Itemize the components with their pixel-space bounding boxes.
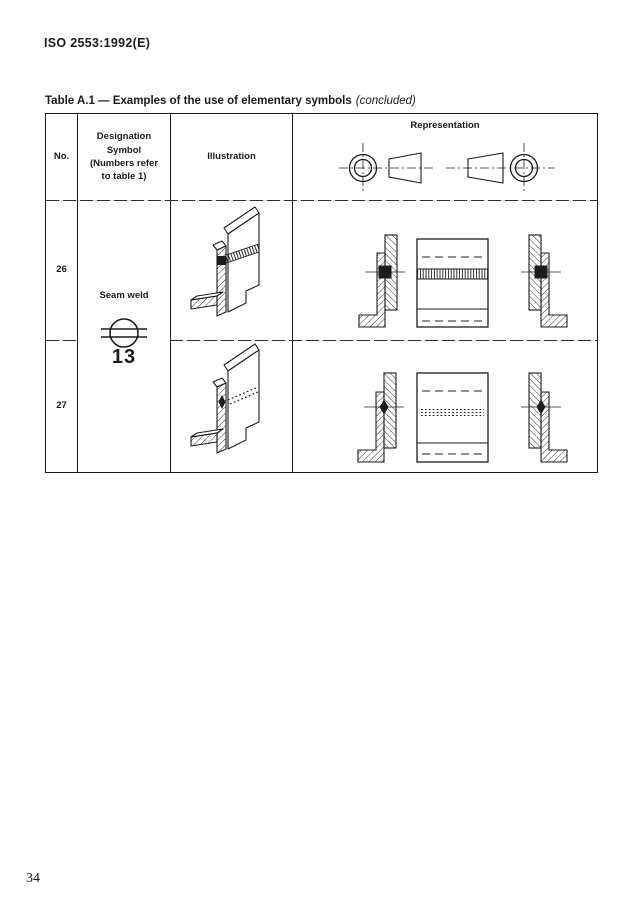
front-view <box>417 239 488 327</box>
symbol-number: 13 <box>78 346 170 369</box>
standard-reference: ISO 2553:1992(E) <box>44 36 150 50</box>
designation-header-line: to table 1) <box>90 170 158 183</box>
right-section-view <box>521 373 567 462</box>
designation-cell: Seam weld 13 <box>78 200 170 471</box>
table-title-main: Table A.1 — Examples of the use of eleme… <box>45 95 352 107</box>
illustration-row-26 <box>171 200 292 340</box>
page-number: 34 <box>26 871 40 887</box>
bracket-leg-face <box>217 383 226 453</box>
seam-weld-coil-band <box>417 269 488 279</box>
left-section-view <box>358 373 404 462</box>
left-section-view <box>359 235 405 327</box>
right-section-view <box>521 235 567 327</box>
representation-row-26 <box>293 200 597 340</box>
first-angle-projection-icon <box>339 143 436 193</box>
weld-designation-label: Seam weld <box>78 290 170 301</box>
table-title-suffix: (concluded) <box>356 95 416 107</box>
front-view <box>417 373 488 462</box>
row-number: 26 <box>46 200 77 340</box>
document-page: ISO 2553:1992(E) Table A.1 — Examples of… <box>0 0 638 903</box>
illustration-row-27 <box>171 340 292 471</box>
designation-header-line: (Numbers refer <box>90 157 158 170</box>
seam-weld-isometric-visible <box>171 200 292 340</box>
representation-row-27 <box>293 340 597 471</box>
table-a1: No. Designation Symbol (Numbers refer to… <box>45 113 598 473</box>
column-header-representation: Representation <box>293 114 597 200</box>
weld-square-marker <box>217 256 226 265</box>
seam-weld-isometric-hidden <box>171 340 292 471</box>
column-header-no: No. <box>46 114 77 200</box>
column-header-designation: Designation Symbol (Numbers refer to tab… <box>78 114 170 200</box>
projection-method-symbols <box>293 130 597 200</box>
row-number: 27 <box>46 340 77 471</box>
representation-views-hidden-seam <box>293 340 597 471</box>
designation-header-line: Designation <box>90 130 158 143</box>
table-title: Table A.1 — Examples of the use of eleme… <box>45 95 416 107</box>
weld-square-marker <box>535 266 548 279</box>
third-angle-projection-icon <box>446 143 555 193</box>
weld-square-marker <box>379 266 392 279</box>
column-header-illustration: Illustration <box>171 114 292 200</box>
representation-views-visible-seam <box>293 200 597 340</box>
designation-header-line: Symbol <box>90 144 158 157</box>
